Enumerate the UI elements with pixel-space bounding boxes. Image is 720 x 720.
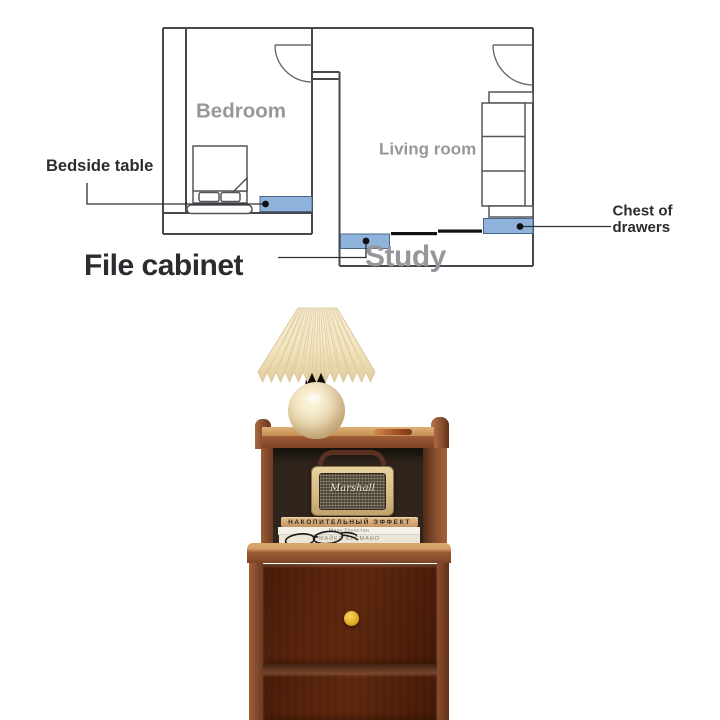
- bedroom-door: [275, 45, 312, 82]
- callout-bedside-table: Bedside table: [46, 157, 153, 175]
- drawer-gap: [263, 664, 437, 673]
- product-image: Bedroom Living room Study Bedside table …: [0, 0, 720, 720]
- living-room-door: [493, 45, 533, 85]
- shelf-left-side: [261, 448, 273, 543]
- speaker-logo: Marshall: [319, 483, 386, 494]
- drawer-unit-right-frame: [437, 563, 449, 720]
- lamp-base: [288, 382, 345, 439]
- callout-chest-line1: Chest of: [613, 203, 674, 220]
- room-label-living-room: Living room: [379, 140, 476, 159]
- bed-base: [187, 205, 252, 214]
- drawer-unit-top: [247, 543, 451, 563]
- pillow: [221, 193, 240, 202]
- cabinet-top-rail: [262, 436, 434, 448]
- pen-on-top: [374, 429, 412, 435]
- room-label-study: Study: [365, 240, 447, 273]
- sofa: [482, 92, 533, 217]
- room-label-bedroom: Bedroom: [196, 100, 286, 123]
- lamp-base-highlight: [303, 392, 325, 404]
- callout-file-cabinet: File cabinet: [84, 249, 244, 282]
- shelf-right-side: [423, 448, 447, 543]
- floor-plan: Bedroom Living room Study Bedside table …: [0, 0, 720, 300]
- drawer-unit-left-frame: [249, 563, 263, 720]
- drawer-knob: [344, 611, 359, 626]
- callout-chest-line2: drawers: [613, 219, 671, 236]
- pillow: [199, 193, 219, 202]
- desk: [391, 230, 482, 236]
- bottom-drawer: [263, 673, 437, 720]
- lamp-shade: [252, 304, 382, 388]
